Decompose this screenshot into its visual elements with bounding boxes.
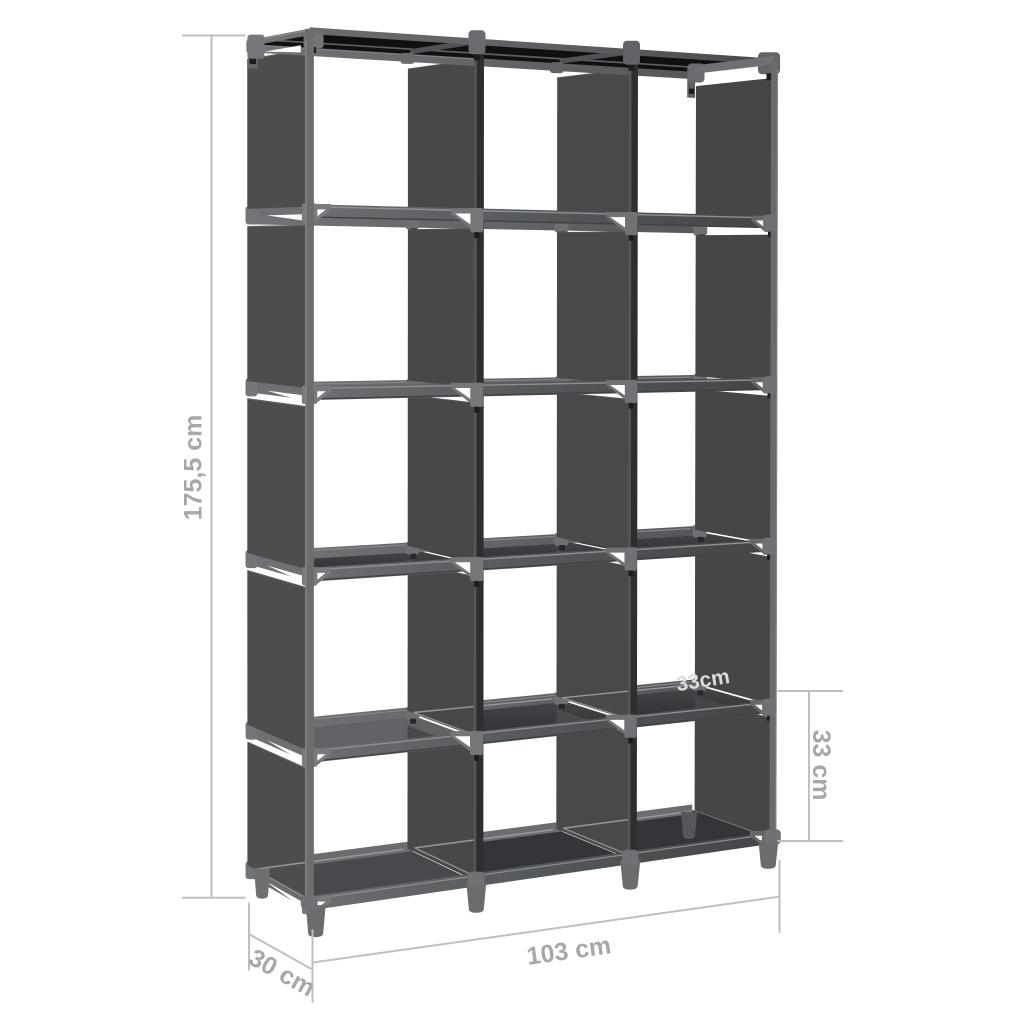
svg-text:175,5 cm: 175,5 cm [180, 415, 208, 521]
svg-text:33 cm: 33 cm [807, 730, 835, 801]
